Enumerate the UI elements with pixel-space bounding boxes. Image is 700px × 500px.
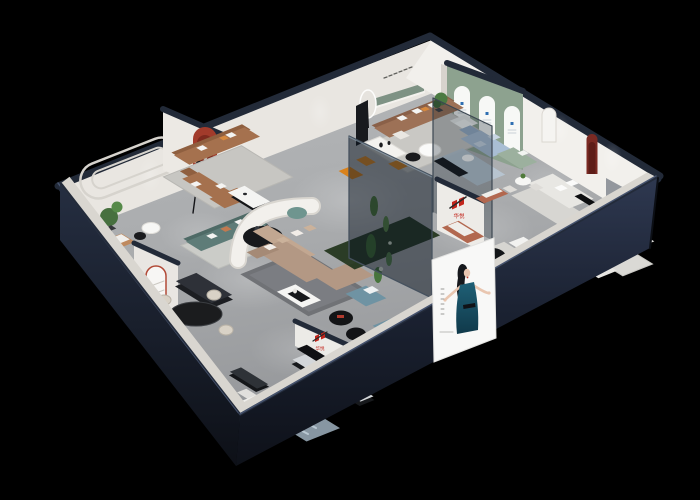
display-arch-2-logo <box>486 112 489 115</box>
display-arch-1-logo <box>461 102 464 105</box>
table-vase-white <box>293 289 297 294</box>
poster-woman-face <box>464 269 470 277</box>
wall-spotlight <box>308 94 332 130</box>
red-arch-niche-right-inner <box>589 142 596 174</box>
scene-svg: 华悦华悦 <box>0 0 700 500</box>
brand-logo-text: 华悦 <box>453 212 465 220</box>
cream-dining-chair <box>207 290 221 300</box>
table-red-book <box>337 315 344 318</box>
round-side-table-black <box>134 232 146 240</box>
brand-logo-text: 华悦 <box>316 345 325 352</box>
table-decor <box>243 193 247 195</box>
potted-plant-large <box>112 202 123 213</box>
cream-dining-chair <box>219 325 233 335</box>
wall-spotlight <box>602 142 622 174</box>
teal-stool <box>287 207 307 219</box>
scene-items: 华悦华悦 <box>58 36 660 466</box>
round-coffee-table <box>142 223 160 234</box>
round-side-table-black <box>406 153 421 162</box>
white-door-arch <box>542 108 556 142</box>
poster-woman-hand <box>487 291 490 294</box>
poster-woman-lips <box>467 277 469 279</box>
display-arch-3-logo <box>511 122 514 125</box>
showroom-render: 华悦华悦 <box>0 0 700 500</box>
dark-doorway <box>356 100 368 146</box>
table-vase <box>388 141 391 145</box>
table-plant <box>521 174 526 179</box>
table-vase <box>379 143 383 148</box>
